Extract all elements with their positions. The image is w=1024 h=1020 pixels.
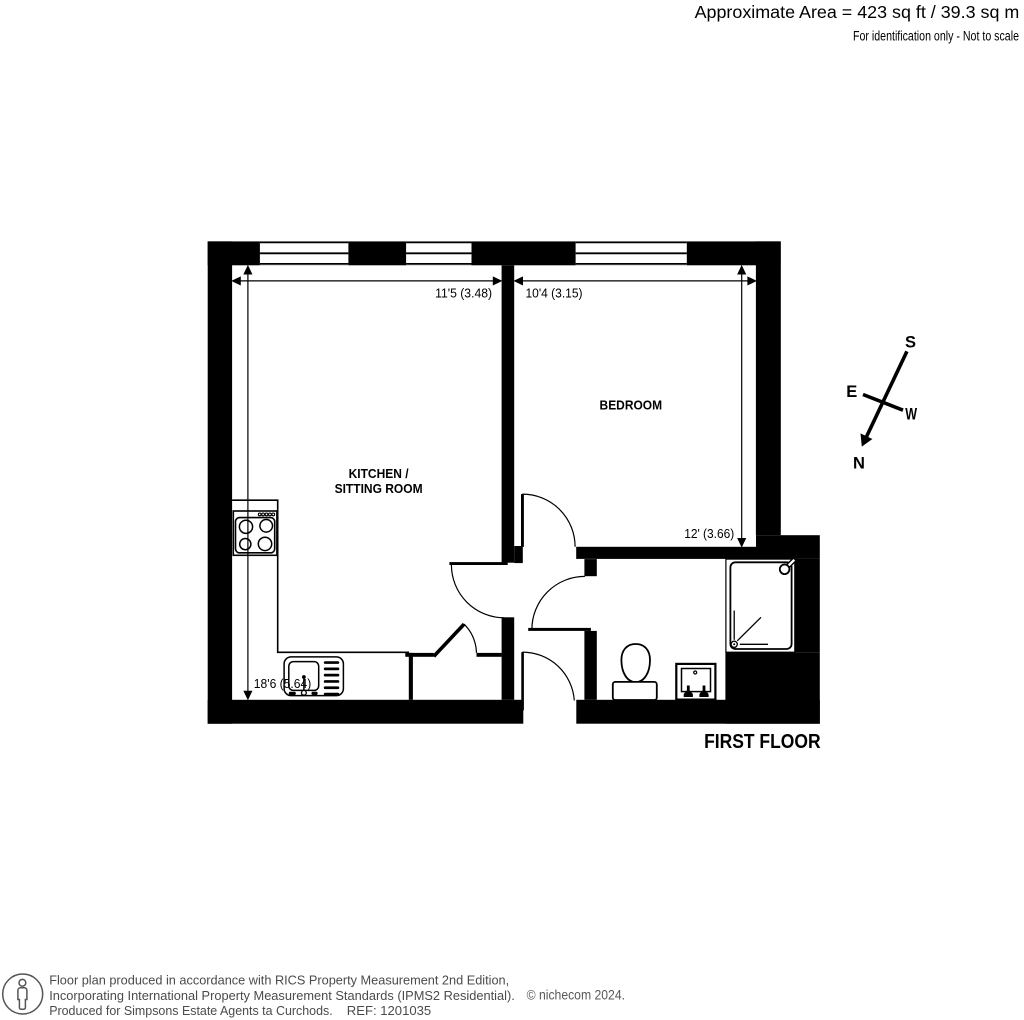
svg-text:KITCHEN /: KITCHEN /	[349, 466, 409, 481]
svg-text:Floor plan produced in accorda: Floor plan produced in accordance with R…	[49, 973, 509, 988]
svg-text:For identification only - Not: For identification only - Not to scale	[853, 29, 1019, 44]
svg-text:N: N	[853, 454, 865, 472]
svg-text:© nichecom 2024.: © nichecom 2024.	[527, 987, 625, 1002]
svg-text:10'4 (3.15): 10'4 (3.15)	[526, 286, 583, 301]
svg-text:Approximate Area = 423 sq ft /: Approximate Area = 423 sq ft / 39.3 sq m	[695, 2, 1020, 22]
svg-text:REF: 1201035: REF: 1201035	[347, 1003, 431, 1018]
svg-text:BEDROOM: BEDROOM	[600, 397, 663, 412]
svg-text:SITTING ROOM: SITTING ROOM	[335, 481, 423, 496]
svg-text:Produced for Simpsons Estate A: Produced for Simpsons Estate Agents ta C…	[49, 1003, 333, 1018]
svg-text:11'5 (3.48): 11'5 (3.48)	[435, 286, 492, 301]
svg-text:E: E	[846, 383, 857, 401]
svg-text:S: S	[905, 334, 916, 352]
svg-text:FIRST FLOOR: FIRST FLOOR	[704, 731, 821, 753]
svg-text:12' (3.66): 12' (3.66)	[684, 526, 734, 541]
svg-text:18'6 (5.64): 18'6 (5.64)	[254, 676, 311, 691]
svg-text:W: W	[905, 406, 917, 424]
svg-text:Incorporating International Pr: Incorporating International Property Mea…	[49, 988, 515, 1003]
